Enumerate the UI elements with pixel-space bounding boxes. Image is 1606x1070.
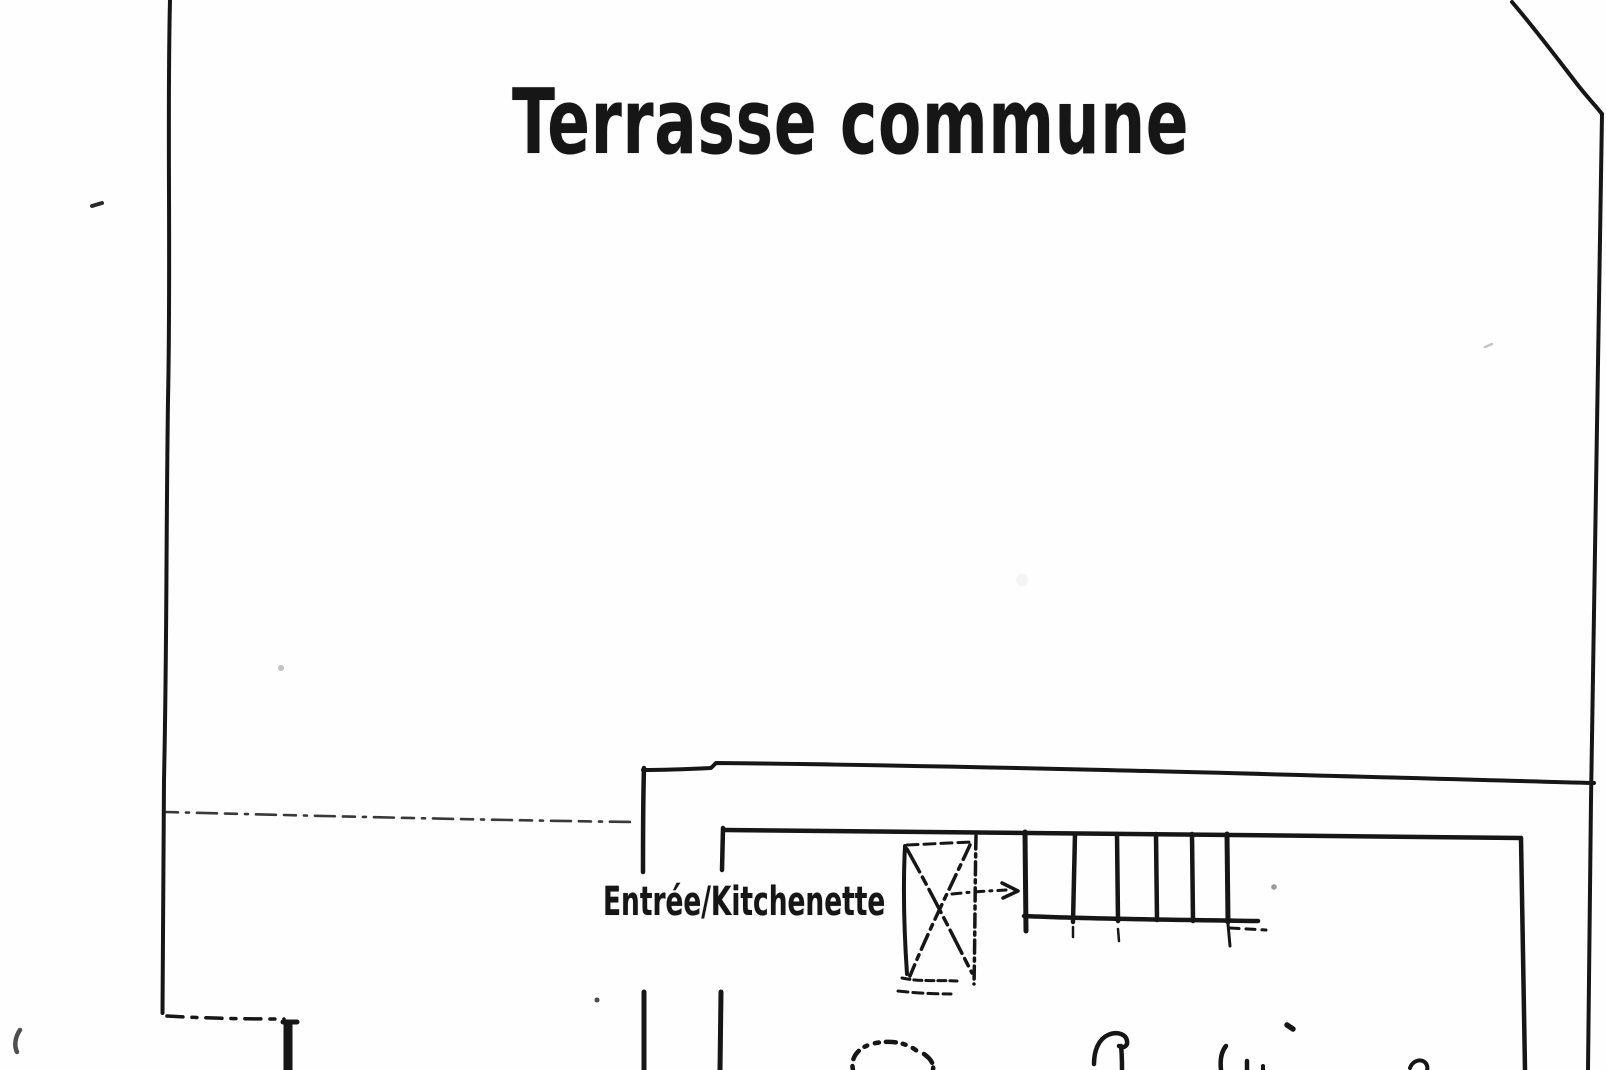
floor-plan-scan: Terrasse commune Entrée/Kitchenette (0, 0, 1606, 1070)
wall-left (163, 0, 171, 1013)
scan-speck (595, 998, 600, 1003)
stair-rung (1073, 834, 1075, 922)
wall-inner-horizontal (724, 830, 1521, 838)
arrow-icon (952, 883, 1018, 898)
wall-entry-outer-upper (643, 768, 644, 872)
wall-entry-inner-lower (720, 992, 721, 1070)
wall-inner-right (1521, 838, 1525, 1070)
wall-corner-diagonal (1512, 2, 1602, 114)
stair-rung (1156, 834, 1157, 920)
shaft-x-diagonal (910, 845, 970, 976)
shaft-x-symbol (898, 836, 976, 994)
stairs-bottom-rail-dashes (1230, 928, 1266, 930)
scan-speck (15, 1030, 20, 1052)
stair-rung (1227, 834, 1228, 922)
handwriting-stroke (852, 1042, 917, 1070)
scan-speck (1016, 574, 1028, 586)
scan-speck (1271, 884, 1277, 890)
stair-rung-tick (1118, 929, 1119, 941)
entrance-kitchenette-label: Entrée/Kitchenette (603, 882, 885, 922)
handwriting-stroke (1121, 1046, 1122, 1070)
shaft-left-edge (904, 846, 907, 974)
handwriting-stroke (1410, 1060, 1427, 1070)
wall-top-outer (643, 763, 1594, 783)
stair-rung (1117, 834, 1118, 921)
handwriting-stroke (924, 1054, 933, 1070)
bottom-left-walls (167, 1016, 297, 1070)
terrace-divider-dashed-line (166, 812, 632, 822)
shaft-bottom-edge-2 (898, 991, 951, 994)
handwriting-strokes (852, 1025, 1427, 1070)
stair-rung (1025, 832, 1026, 931)
scan-speck (1485, 344, 1492, 347)
stair-rung-tick (1228, 924, 1230, 946)
shaft-right-edge (974, 836, 976, 984)
staircase-symbol (1024, 832, 1266, 946)
wall-right (1588, 114, 1602, 1070)
wall-entry-inner-upper (722, 828, 723, 870)
scan-speck (92, 203, 102, 206)
handwriting-stroke (1221, 1046, 1226, 1070)
stairs-bottom-rail (1024, 916, 1258, 921)
shaft-top-edge (907, 842, 971, 845)
shaft-bottom-edge (902, 978, 957, 981)
arrow-shaft (952, 890, 1006, 894)
wall-bottom-left-dashed (167, 1016, 284, 1019)
handwriting-i-dot (1287, 1025, 1293, 1029)
stair-rung (1192, 834, 1193, 921)
scan-speck (278, 665, 284, 671)
terrace-label: Terrasse commune (512, 78, 1189, 168)
